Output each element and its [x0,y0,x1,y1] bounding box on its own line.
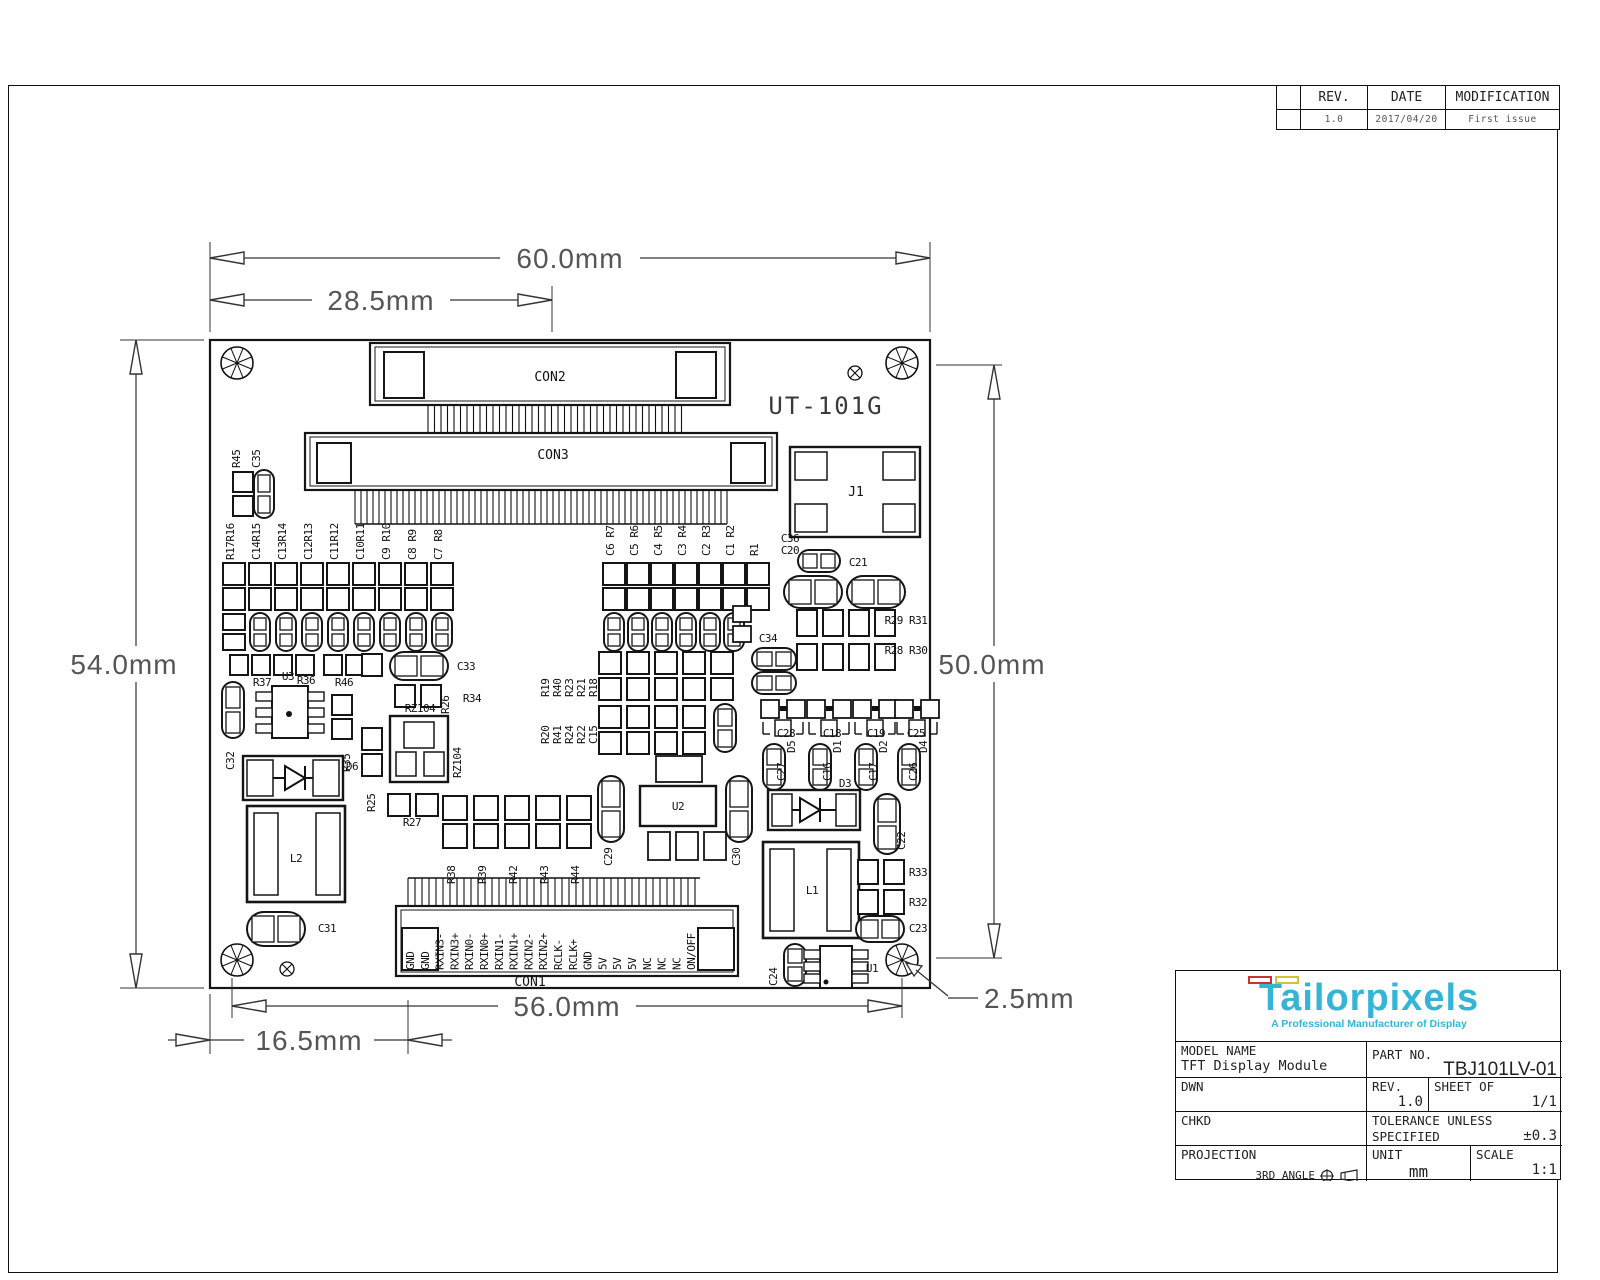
pcb-shape [632,618,644,630]
con1-pin-label: RCLK+ [567,939,580,970]
pcb-shape [656,756,702,782]
dimension-arrow [176,1034,210,1046]
pcb-shape [536,796,560,820]
pcb-shape [852,950,868,959]
component-label: C1 R2 [724,525,737,556]
component-label: R38 [445,866,458,884]
pcb-shape [824,980,829,985]
pcb-shape [788,967,802,981]
component-label: C24 [767,967,780,986]
component-label: D3 [839,777,851,790]
con1-pin-label: RXIN2- [522,933,535,970]
component-label: C12R13 [302,523,315,560]
dimension-arrow [130,340,142,374]
logo-flag-red [1248,976,1272,984]
pcb-shape [878,799,896,822]
logo: Tailorpixels A Professional Manufacturer… [1176,971,1562,1041]
drawing-page: R45C35R17R16C14R15C13R14C12R13C11R12C10R… [0,0,1600,1280]
con1-pin-label: 5V [626,957,639,970]
component-label: R33 [909,866,927,879]
component-label: R27 [403,816,421,829]
pcb-shape [627,678,649,700]
pcb-shape [683,732,705,754]
pcb-shape [443,824,467,848]
dim-offset-con1: 16.5mm [255,1025,362,1056]
pcb-shape [332,618,344,630]
modification-header: MODIFICATION [1445,86,1559,110]
pcb-shape [761,700,779,718]
pcb-shape [379,588,401,610]
pcb-shape [233,472,253,492]
pcb-shape [627,563,649,585]
pcb-shape [436,634,448,646]
component-label: R18 [587,679,600,697]
pcb-shape [254,618,266,630]
pcb-shape [836,794,856,826]
pcb-shape [362,754,382,776]
pcb-shape [861,920,878,938]
component-label: R37 [253,676,271,689]
logo-text: Tailorpixels [1176,979,1562,1017]
pcb-shape [823,610,843,636]
pcb-shape [804,950,820,959]
pcb-shape [852,580,874,604]
pcb-shape [680,634,692,646]
pcb-shape [223,634,245,650]
pcb-shape [249,588,271,610]
pcb-shape [711,678,733,700]
rev-label: REV. [1372,1080,1423,1094]
pcb-shape [797,610,817,636]
pcb-shape [648,832,670,860]
con1-pin-label: NC [670,958,683,970]
pcb-shape [683,678,705,700]
pcb-shape [252,916,274,942]
pcb-shape [603,588,625,610]
pcb-shape [704,832,726,860]
component-label: C27 [775,763,788,781]
component-label: R1 [748,544,761,556]
pcb-shape [256,692,272,701]
component-label: C15 [587,726,600,744]
pcb-shape [878,826,896,849]
model-name-value: TFT Display Module [1181,1058,1361,1074]
pcb-shape [301,588,323,610]
rev-field-value: 1.0 [1372,1094,1423,1110]
pcb-shape [884,890,904,914]
pcb-shape [651,588,673,610]
pcb-shape [602,811,620,837]
pcb-shape [599,706,621,728]
scale-value: 1:1 [1476,1162,1557,1178]
component-label: D2 [877,741,890,753]
component-label: R26 [439,696,452,714]
pcb-shape [278,916,300,942]
pcb-shape [599,652,621,674]
pcb-shape [306,634,318,646]
unit-label: UNIT [1372,1148,1465,1162]
component-label: C20 [781,544,799,557]
pcb-shape [698,928,734,970]
pcb-shape [655,706,677,728]
component-label: L2 [290,852,302,865]
dim-height-right: 50.0mm [938,649,1045,680]
pcb-shape [882,920,899,938]
model-name-label: MODEL NAME [1181,1044,1361,1058]
pcb-shape [474,824,498,848]
pcb-shape [757,652,772,666]
component-label: R45 [230,450,243,468]
pcb-shape [424,752,444,776]
pcb-shape [780,706,787,711]
pcb-shape [416,794,438,816]
board-title: UT-101G [768,392,883,420]
third-angle-projection-icon [1319,1168,1361,1181]
pcb-shape [921,700,939,718]
dim-width-overall: 60.0mm [516,243,623,274]
component-label: C16 [821,763,834,781]
pcb-shape [676,352,716,398]
component-label: C29 [602,848,615,866]
pcb-shape [680,618,692,630]
pcb-shape [747,563,769,585]
pcb-shape [733,606,751,622]
logo-tagline: A Professional Manufacturer of Display [1176,1018,1562,1030]
component-label: R42 [507,866,520,884]
pcb-shape [776,652,791,666]
pcb-shape [704,618,716,630]
pcb-shape [405,588,427,610]
component-label: C19 [867,727,885,740]
chkd-label: CHKD [1181,1114,1361,1128]
component-label: C8 R9 [406,529,419,560]
projection-value: 3RD ANGLE [1255,1169,1315,1181]
pcb-shape [405,563,427,585]
con1-pin-label: NC [656,958,669,970]
pcb-shape [757,676,772,690]
component-label: R43 [538,866,551,884]
pcb-shape [788,949,802,963]
component-label: C26 [907,763,920,781]
component-label: C34 [759,632,778,645]
pcb-shape [823,644,843,670]
pcb-shape [826,706,833,711]
con1-pin-label: GND [419,952,432,970]
revision-table: REV. DATE MODIFICATION 1.0 2017/04/20 Fi… [1276,85,1560,130]
dimension-arrow [518,294,552,306]
con1-pin-label: RXIN2+ [537,932,550,970]
pcb-shape [226,712,240,733]
con1-pin-label: 5V [596,957,609,970]
pcb-shape [410,618,422,630]
pcb-shape [226,687,240,708]
sheet-label: SHEET OF [1434,1080,1557,1094]
component-label: C2 R3 [700,525,713,556]
pcb-shape [807,700,825,718]
pcb-shape [789,580,811,604]
component-label: C25 [907,727,925,740]
pcb-shape [317,443,351,483]
component-label: C33 [457,660,475,673]
pcb-shape [914,706,921,711]
con2-label: CON2 [534,370,565,385]
pcb-shape [902,749,916,765]
pcb-shape [683,706,705,728]
pcb-shape [656,634,668,646]
tolerance-label-line2: SPECIFIED [1372,1130,1440,1144]
pcb-line-art [120,242,1002,1054]
pcb-shape [833,700,851,718]
pcb-shape [254,813,278,895]
pcb-shape [332,695,352,715]
tolerance-label-line1: TOLERANCE UNLESS [1372,1114,1557,1128]
pcb-shape [815,580,837,604]
dimension-arrow [130,954,142,988]
modification-value: First issue [1445,110,1559,129]
pcb-shape [797,644,817,670]
component-label: C30 [730,848,743,866]
dim-width-bottom: 56.0mm [513,991,620,1022]
dimension-arrow [988,365,1000,399]
pcb-shape [443,796,467,820]
pcb-shape [436,618,448,630]
pcb-shape [230,655,248,675]
con1-pin-label: 5V [611,957,624,970]
pcb-shape [384,618,396,630]
pcb-shape [567,824,591,848]
component-label: R29 R31 [885,614,928,627]
pcb-shape [358,618,370,630]
pcb-shape [223,614,245,630]
component-label: U3 [282,670,294,683]
pcb-shape [431,563,453,585]
con1-label: CON1 [514,975,545,990]
dimension-arrow [232,1000,266,1012]
pcb-shape [327,588,349,610]
pcb-shape [804,974,820,983]
pcb-shape [296,655,314,675]
dimension-arrow [868,1000,902,1012]
pcb-shape [655,652,677,674]
pcb-shape [233,496,253,516]
con1-pin-label: GND [404,952,417,970]
pcb-shape [396,752,416,776]
pcb-shape [395,656,417,676]
pcb-shape [410,634,422,646]
component-label: R25 [365,794,378,812]
pcb-shape [627,652,649,674]
component-label: C18 [823,727,841,740]
pcb-shape [308,708,324,717]
dim-height-left: 54.0mm [70,649,177,680]
sheet-value: 1/1 [1434,1094,1557,1110]
pcb-shape [308,692,324,701]
component-label: U1 [866,962,878,975]
con1-pin-label: NC [641,958,654,970]
component-label: C11R12 [328,523,341,560]
dimension-arrow [210,294,244,306]
pcb-shape [772,794,792,826]
component-label: R28 R30 [885,644,928,657]
pcb-shape [603,563,625,585]
rev-row-corner-cell [1277,110,1300,129]
pcb-shape [474,796,498,820]
pcb-shape [308,724,324,733]
pcb-shape [536,824,560,848]
pcb-shape [431,588,453,610]
pcb-shape [704,634,716,646]
pcb-shape [872,706,879,711]
rev-table-corner-cell [1277,86,1300,110]
pcb-shape [767,749,781,765]
pcb-shape [280,618,292,630]
con1-pin-label: RXIN1- [493,933,506,970]
date-value: 2017/04/20 [1367,110,1445,129]
component-label: D6 [346,760,358,773]
dimension-arrow [210,252,244,264]
component-label: C13R14 [276,522,289,560]
pcb-shape [655,678,677,700]
pcb-shape [813,749,827,765]
pcb-shape [675,563,697,585]
pcb-shape [404,722,434,748]
pcb-shape [627,706,649,728]
dimension-arrow [988,924,1000,958]
pcb-shape [256,724,272,733]
pcb-shape [733,626,751,642]
component-label: R34 [463,692,482,705]
component-label: L1 [806,884,818,897]
pcb-shape [787,700,805,718]
component-label: C10R11 [354,523,367,560]
con1-pin-label: RCLK- [552,939,565,970]
pcb-shape [699,588,721,610]
component-label: C28 [777,727,795,740]
pcb-shape [306,618,318,630]
pcb-shape [332,634,344,646]
component-label: R44 [569,865,582,884]
pcb-shape [327,563,349,585]
component-label: C17 [867,763,880,781]
pcb-shape [711,652,733,674]
component-label: R17R16 [224,523,237,560]
part-no-label: PART NO. [1372,1047,1432,1062]
pcb-shape [379,563,401,585]
pcb-shape [505,824,529,848]
component-label: C14R15 [250,523,263,560]
pcb-shape [384,352,424,398]
j1-label: J1 [848,485,864,500]
pcb-shape [676,832,698,860]
pcb-shape [280,634,292,646]
component-label: RZ104 [405,702,436,715]
pcb-shape [332,719,352,739]
con1-pin-label: ON/OFF [685,933,698,970]
pcb-shape [699,563,721,585]
pcb-shape [853,700,871,718]
component-label: R46 [335,676,353,689]
pcb-shape [505,796,529,820]
component-label: C22 [895,832,908,850]
pcb-shape [388,794,410,816]
con3-label: CON3 [537,448,568,463]
pcb-shape [247,760,273,796]
pcb-shape [362,728,382,750]
pcb-shape [803,554,817,568]
pcb-shape [223,588,245,610]
pcb-shape [599,732,621,754]
scale-label: SCALE [1476,1148,1557,1162]
pcb-shape [301,563,323,585]
con1-pin-label: RXIN3- [434,933,447,970]
pcb-shape [608,634,620,646]
pcb-shape [858,890,878,914]
pcb-shape [256,708,272,717]
component-label: C5 R6 [628,525,641,556]
component-label: C7 R8 [432,529,445,560]
pcb-shape [632,634,644,646]
component-label: U2 [672,800,684,813]
pcb-shape [827,849,851,931]
component-label: R36 [297,674,315,687]
component-label: C35 [250,450,263,468]
pcb-shape [567,796,591,820]
component-label: C23 [909,922,927,935]
pcb-shape [252,655,270,675]
pcb-shape [730,811,748,837]
pcb-shape [258,475,270,492]
con1-pin-label: GND [582,952,595,970]
pcb-shape [852,974,868,983]
pcb-shape [275,588,297,610]
pcb-shape [884,860,904,884]
pcb-shape [730,781,748,807]
pcb-shape [770,849,794,931]
pcb-shape [804,962,820,971]
pcb-shape [249,563,271,585]
pcb-shape [651,563,673,585]
component-label: D1 [831,741,844,753]
unit-value: mm [1372,1162,1465,1181]
pcb-shape [858,860,878,884]
rev-header: REV. [1300,86,1367,110]
pcb-shape [776,676,791,690]
con1-pin-label: RXIN3+ [448,932,461,970]
component-label: C21 [849,556,867,569]
pcb-shape [895,700,913,718]
pcb-shape [723,563,745,585]
pcb-shape [675,588,697,610]
dimension-arrow [896,252,930,264]
component-label: C6 R7 [604,525,617,556]
component-label: D4 [917,740,930,753]
pcb-shape [656,618,668,630]
con1-pin-label: RXIN0- [463,933,476,970]
pcb-shape [627,588,649,610]
pcb-shape [316,813,340,895]
pcb-shape [602,781,620,807]
pcb-shape [795,452,827,480]
pcb-shape [731,443,765,483]
component-label: C32 [224,752,237,770]
con1-pin-label: RXIN0+ [478,932,491,970]
date-header: DATE [1367,86,1445,110]
pcb-shape [821,554,835,568]
pcb-shape [655,732,677,754]
title-block: Tailorpixels A Professional Manufacturer… [1175,970,1561,1180]
pcb-shape [223,563,245,585]
pcb-shape [324,655,342,675]
